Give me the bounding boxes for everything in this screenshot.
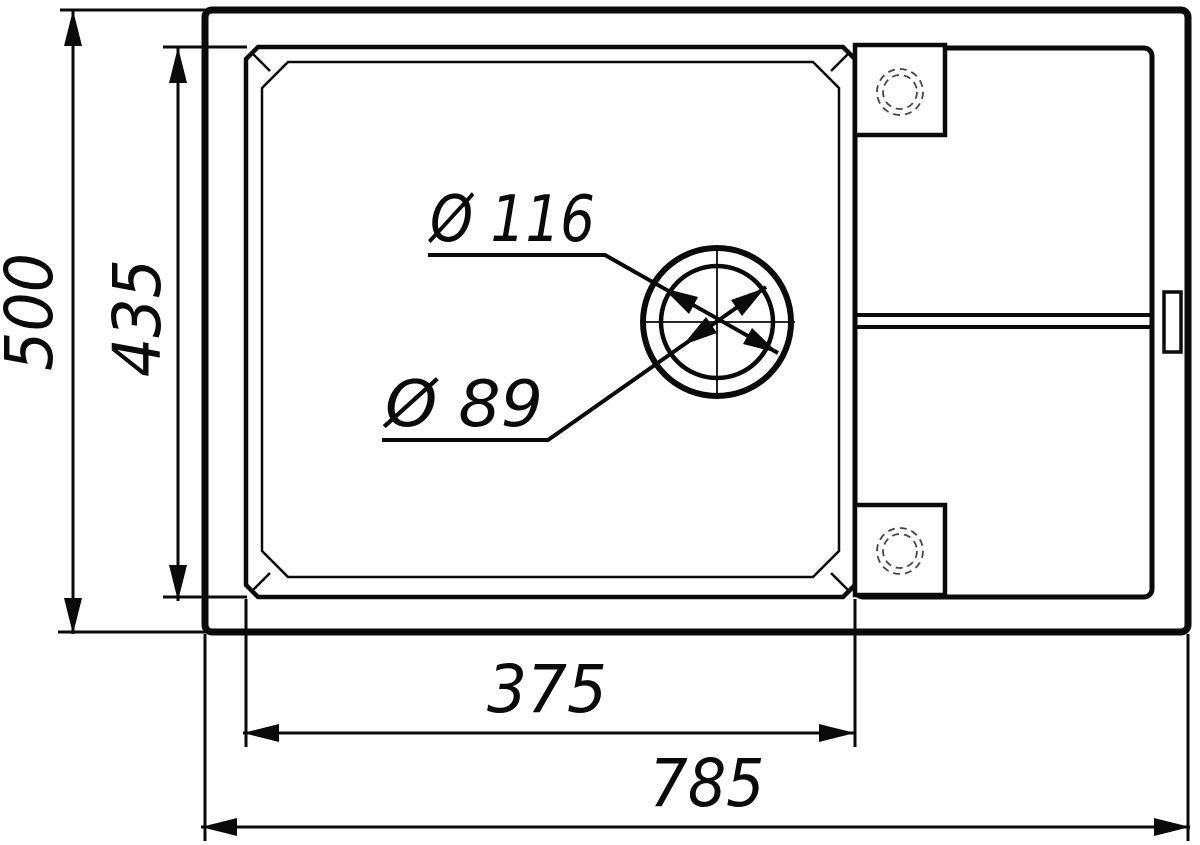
dim-label-overall-depth: 500: [0, 253, 68, 371]
dimension-arrowheads: [64, 10, 1190, 836]
sink-outer-rim: [205, 10, 1188, 632]
bowl-inner-edge: [262, 62, 839, 577]
dim-label-bowl-depth: 435: [99, 259, 176, 377]
dim-label-overall-width: 785: [650, 745, 765, 822]
tap-hole-square-bottom: [855, 505, 945, 595]
dimension-lines: [73, 10, 1190, 827]
overflow-tab: [1164, 292, 1181, 352]
tap-hole-square-top: [855, 45, 945, 135]
sink-dimension-drawing: 500 435 375 785 Ø 116 Ø 89: [0, 0, 1200, 845]
drawing-canvas: 500 435 375 785 Ø 116 Ø 89: [0, 0, 1200, 845]
dim-label-drain-outer-diameter: Ø 116: [427, 183, 595, 257]
extension-lines: [58, 10, 1188, 841]
dim-label-bowl-width: 375: [487, 651, 607, 728]
drainboard-channel: [857, 315, 1150, 327]
dim-label-drain-inner-diameter: Ø 89: [382, 368, 543, 442]
